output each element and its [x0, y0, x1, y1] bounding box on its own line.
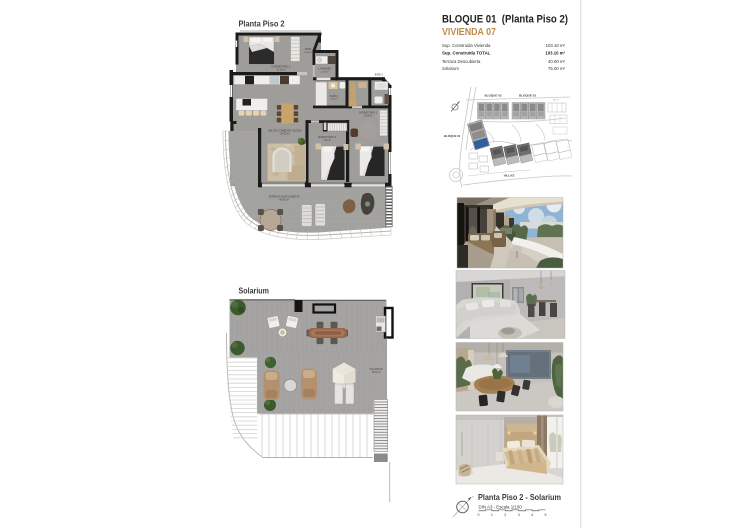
svg-text:BLOQUE 01: BLOQUE 01 [444, 134, 461, 138]
svg-text:11.06 m²: 11.06 m² [364, 114, 373, 117]
svg-text:0: 0 [478, 513, 480, 517]
svg-text:103.10 m²: 103.10 m² [545, 51, 565, 56]
svg-text:Terraza Descubierta: Terraza Descubierta [442, 59, 481, 64]
svg-text:BAÑO 1: BAÑO 1 [375, 74, 384, 77]
svg-text:Solarium: Solarium [442, 66, 459, 71]
svg-text:3: 3 [518, 513, 520, 517]
svg-text:34.50 m²: 34.50 m² [280, 133, 290, 136]
svg-text:3.20 m²: 3.20 m² [321, 70, 329, 73]
svg-text:VILLAS: VILLAS [504, 174, 515, 178]
svg-text:LAVADERO: LAVADERO [319, 68, 332, 71]
svg-text:75.00 m²: 75.00 m² [548, 66, 566, 71]
svg-text:Sup. Construida TOTAL: Sup. Construida TOTAL [442, 51, 491, 56]
svg-text:Fase 2: Fase 2 [553, 100, 560, 102]
svg-text:5: 5 [545, 513, 547, 517]
svg-text:4.30 m²: 4.30 m² [330, 98, 337, 101]
svg-text:SOLARIUM: SOLARIUM [369, 368, 382, 371]
svg-text:BLOQUE 01 (Planta Piso 2): BLOQUE 01 (Planta Piso 2) [442, 14, 568, 26]
svg-text:75.00 m²: 75.00 m² [371, 371, 380, 374]
svg-text:Solarium: Solarium [239, 287, 270, 296]
svg-text:40.00 m²: 40.00 m² [279, 199, 289, 202]
svg-text:103.10 m²: 103.10 m² [546, 43, 566, 48]
svg-text:N: N [472, 497, 474, 499]
svg-text:11.10 m²: 11.10 m² [276, 69, 285, 72]
svg-text:VIVIENDA 07: VIVIENDA 07 [442, 26, 496, 38]
svg-text:1: 1 [491, 513, 493, 517]
svg-text:BLOQUE 02: BLOQUE 02 [484, 94, 501, 98]
svg-text:40.00 m²: 40.00 m² [548, 59, 566, 64]
svg-text:Planta Piso 2 - Solarium: Planta Piso 2 - Solarium [478, 492, 561, 502]
svg-text:DIN A3 - Escala 1/100: DIN A3 - Escala 1/100 [479, 504, 523, 509]
svg-text:BAÑO 2: BAÑO 2 [330, 95, 339, 98]
svg-text:PASO: PASO [305, 48, 312, 51]
svg-text:Planta Piso 2: Planta Piso 2 [239, 20, 285, 29]
svg-text:DORMITORIO 3: DORMITORIO 3 [318, 136, 337, 139]
svg-text:Sup. Construida Vivienda: Sup. Construida Vivienda [442, 43, 491, 48]
svg-text:2.06 m²: 2.06 m² [304, 51, 312, 54]
svg-text:BLOQUE 03: BLOQUE 03 [519, 94, 536, 98]
svg-text:DORMITORIO 1: DORMITORIO 1 [359, 112, 378, 115]
svg-text:7.30 m²: 7.30 m² [323, 139, 331, 142]
svg-text:s: s [453, 517, 454, 519]
svg-text:2: 2 [504, 513, 506, 517]
svg-text:4: 4 [531, 513, 533, 517]
